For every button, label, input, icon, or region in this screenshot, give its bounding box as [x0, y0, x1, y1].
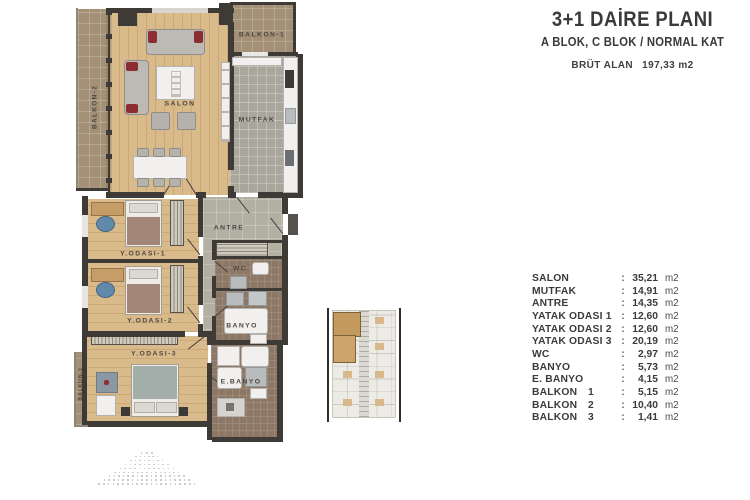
kitchen-cabinet — [232, 57, 282, 66]
table-row: MUTFAK:14,91m2 — [532, 285, 687, 298]
wall — [88, 259, 198, 263]
toilet — [250, 388, 267, 399]
armchair — [96, 395, 116, 416]
rug — [96, 372, 118, 393]
dining-chair — [169, 148, 181, 157]
kitchen-stove — [285, 150, 294, 166]
washbasin — [230, 276, 247, 289]
kitchen-appliance — [285, 70, 294, 88]
floor-plan: SALON MUTFAK ANTRE BALKON-1 BALKON-2 BAL… — [0, 0, 750, 500]
room-label-yodasi1: Y.ODASI-1 — [120, 251, 166, 258]
dining-chair — [153, 148, 165, 157]
double-bed — [131, 364, 179, 417]
keyplan-furniture — [343, 399, 352, 406]
wall — [74, 352, 76, 426]
room-label-yodasi3: Y.ODASI-3 — [131, 351, 177, 358]
wall — [212, 340, 283, 345]
wall — [207, 337, 212, 345]
table-row: BALKON2:10,40m2 — [532, 399, 687, 412]
keyplan-divider-right — [399, 308, 401, 422]
toilet — [252, 262, 269, 275]
wall — [282, 235, 288, 345]
wall — [106, 192, 164, 198]
wall — [212, 276, 216, 298]
keyplan-furniture — [375, 371, 384, 378]
wall — [74, 425, 88, 427]
room-label-antre: ANTRE — [214, 225, 244, 232]
table-row: YATAK ODASI 3:20,19m2 — [532, 335, 687, 348]
dining-chair — [137, 178, 149, 187]
desk — [91, 202, 124, 216]
bathtub — [241, 346, 269, 367]
table-row: YATAK ODASI 2:12,60m2 — [532, 323, 687, 336]
wall — [230, 2, 296, 5]
desk — [91, 268, 124, 282]
wall — [212, 316, 216, 340]
wall — [198, 196, 203, 237]
wall — [293, 2, 296, 56]
room-label-wc: WC — [233, 266, 247, 273]
nightstand — [179, 407, 188, 416]
tv-unit — [221, 62, 230, 142]
room-label-yodasi2: Y.ODASI-2 — [127, 318, 173, 325]
table-row: BANYO:5,73m2 — [532, 361, 687, 374]
wall — [82, 331, 185, 337]
window-kitchen — [242, 52, 268, 56]
window-salon-top — [152, 8, 208, 13]
table-row: WC:2,97m2 — [532, 348, 687, 361]
wall — [214, 256, 282, 259]
floorplan-page: 3+1 DAİRE PLANI A BLOK, C BLOK / NORMAL … — [0, 0, 750, 500]
room-label-banyo: BANYO — [226, 323, 258, 330]
wall-pillar — [118, 10, 137, 26]
keyplan-furniture — [343, 371, 352, 378]
room-balkon1 — [230, 4, 294, 53]
table-row: BALKON1:5,15m2 — [532, 386, 687, 399]
dining-chair — [169, 178, 181, 187]
room-label-balkon3: BALKON-3 — [78, 367, 84, 400]
table-row: SALON:35,21m2 — [532, 272, 687, 285]
room-label-balkon1: BALKON-1 — [239, 32, 285, 39]
kitchen-sink — [285, 108, 296, 124]
wall — [277, 345, 283, 440]
armchair — [177, 112, 196, 130]
bidet — [250, 334, 267, 344]
room-label-balkon2: BALKON-2 — [92, 85, 99, 129]
desk-chair — [96, 216, 115, 232]
room-label-mutfak: MUTFAK — [239, 117, 276, 124]
bed — [125, 266, 162, 315]
key-plan-thumbnail — [332, 310, 396, 418]
keyplan-highlighted-unit — [333, 335, 356, 363]
sink-counter — [217, 398, 245, 417]
window-bedroom2 — [82, 286, 88, 308]
dining-chair — [153, 178, 165, 187]
wall — [198, 256, 203, 305]
wall — [282, 196, 288, 214]
shower — [248, 291, 267, 306]
armchair — [151, 112, 170, 130]
table-row: E. BANYO:4,15m2 — [532, 374, 687, 387]
closet-yodasi1 — [170, 200, 184, 246]
bed — [125, 200, 162, 247]
sofa — [124, 60, 149, 115]
entrance-step — [288, 214, 298, 235]
closet-yodasi2 — [170, 265, 184, 313]
table-row: ANTRE:14,35m2 — [532, 297, 687, 310]
shower — [217, 346, 240, 366]
keyplan-furniture — [375, 343, 384, 350]
desk-chair — [96, 282, 115, 298]
area-table: SALON:35,21m2 MUTFAK:14,91m2 ANTRE:14,35… — [532, 272, 687, 424]
wall — [212, 437, 283, 442]
wall — [76, 188, 110, 191]
table-row: YATAK ODASI 1:12,60m2 — [532, 310, 687, 323]
keyplan-divider-left — [327, 308, 329, 422]
window-ticks — [106, 10, 112, 196]
wall — [214, 240, 282, 243]
wall — [76, 8, 78, 190]
washbasin — [226, 292, 244, 306]
room-wc — [215, 258, 283, 289]
table-row: BALKON3:1,41m2 — [532, 412, 687, 425]
window-bedroom1 — [82, 215, 88, 237]
coffee-table — [156, 66, 195, 100]
bathtub — [224, 308, 268, 334]
dining-chair — [137, 148, 149, 157]
wall — [82, 421, 212, 427]
dining-table — [133, 156, 187, 179]
keyplan-furniture — [375, 399, 384, 406]
sofa — [146, 29, 205, 55]
wall — [228, 192, 236, 198]
wall — [207, 363, 212, 440]
nightstand — [121, 407, 130, 416]
room-label-ebanyo: E.BANYO — [221, 379, 262, 386]
keyplan-highlighted-unit — [333, 312, 361, 337]
room-label-salon: SALON — [165, 101, 196, 108]
keyplan-furniture — [375, 317, 384, 324]
